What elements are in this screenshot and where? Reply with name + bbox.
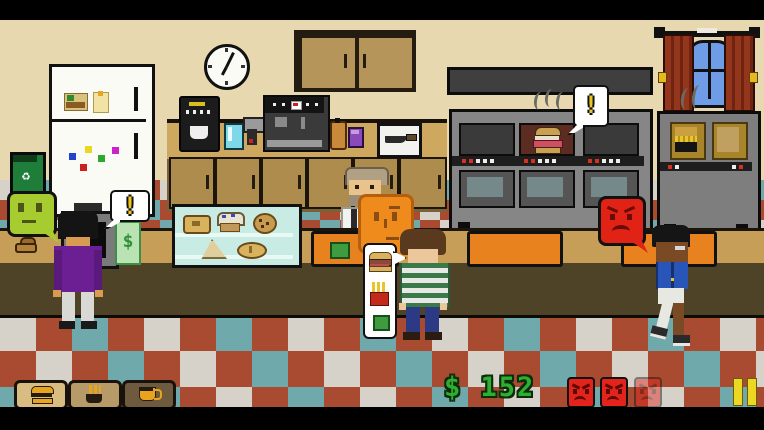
customer-shoe	[81, 321, 97, 329]
photo-detail	[67, 95, 74, 101]
red-light	[588, 159, 592, 163]
customer-shoe	[59, 321, 75, 329]
cookie-chip	[259, 219, 262, 222]
blob-eye	[374, 212, 379, 221]
cookie-pastry[interactable]	[253, 213, 277, 234]
angry-frown	[574, 396, 586, 406]
donut-pastry[interactable]	[183, 215, 211, 234]
oven-door-2[interactable]	[519, 170, 575, 208]
counter-door[interactable]	[261, 157, 307, 209]
red-light	[595, 159, 599, 163]
white-light	[552, 159, 556, 163]
cabinet-door-left[interactable]	[300, 36, 357, 90]
exclamation-icon: !	[112, 193, 148, 219]
jacket-zipper	[671, 262, 674, 289]
door-handle	[390, 175, 393, 189]
icon-cup-handle	[154, 389, 162, 400]
door-handle	[298, 175, 301, 189]
pause-icon	[747, 378, 757, 406]
fryer-basket	[675, 142, 697, 152]
customer-leg	[673, 303, 684, 335]
cabinet-handle	[344, 54, 347, 68]
angry-eye	[652, 389, 656, 394]
curtain-tieback	[749, 72, 758, 83]
blob-eye	[18, 203, 24, 212]
muffin-base	[220, 223, 240, 232]
clock-tick	[225, 48, 228, 52]
order-tray-2	[467, 231, 563, 267]
money-counter: $ 152	[444, 372, 535, 403]
blue-glass	[224, 123, 244, 150]
knife-blade	[385, 136, 407, 143]
customer-leg	[62, 292, 75, 322]
wall-clock	[204, 44, 250, 90]
white-light	[483, 159, 487, 163]
badge-red	[293, 103, 298, 106]
chef-eye	[355, 185, 359, 189]
glass-highlight	[228, 127, 232, 141]
espresso-dot	[282, 103, 285, 106]
red-light	[469, 159, 473, 163]
angry-frown	[607, 396, 619, 406]
espresso-dot	[315, 103, 318, 106]
customer-face	[656, 242, 688, 262]
order-bubble	[363, 243, 397, 339]
coffee-cup-white	[190, 126, 208, 139]
fryer	[657, 111, 761, 231]
blob-eye	[610, 214, 615, 220]
cookie-chip	[266, 222, 269, 225]
white-light	[476, 159, 480, 163]
customer-arm	[54, 250, 62, 290]
espresso-group-head	[301, 117, 305, 129]
syrup-bottle	[330, 121, 347, 150]
customer-walking	[647, 225, 697, 347]
burger-bun-bottom	[535, 147, 561, 154]
customer-hand	[399, 303, 406, 310]
oven-slot-1[interactable]	[459, 123, 515, 156]
coffee-icon	[139, 387, 161, 402]
white-light	[609, 159, 613, 163]
clock-tick	[241, 65, 245, 68]
icon-coffee-surface	[140, 388, 153, 391]
oven-door-glass	[527, 177, 563, 197]
oven-indicator-strip	[452, 156, 644, 166]
order-item-fries	[370, 282, 389, 306]
recycle-icon: ♻	[16, 167, 36, 185]
anger-strike-3-empty	[634, 377, 662, 408]
bread-base	[15, 243, 37, 253]
letterbox-top	[0, 0, 764, 20]
letterbox-bottom	[0, 407, 764, 430]
order-button-fries[interactable]	[68, 380, 122, 410]
blob-body	[7, 191, 57, 237]
pastry-display-case[interactable]	[172, 204, 302, 268]
customer-hair	[58, 211, 98, 239]
angry-eye	[606, 389, 610, 394]
fridge-note-magnet	[93, 92, 109, 113]
espresso-badge	[291, 101, 302, 110]
fridge-divider	[52, 119, 146, 122]
oven-lights	[462, 159, 497, 163]
knife-handle	[406, 134, 417, 141]
clock-hour-hand	[221, 66, 228, 75]
money-bill[interactable]: $	[115, 221, 141, 265]
bottle-cap	[335, 118, 340, 123]
angry-frown	[641, 396, 653, 406]
muffin-berry	[222, 215, 226, 218]
case-shelf	[175, 255, 293, 259]
customer-torso	[400, 263, 450, 307]
blob-eye	[392, 212, 397, 221]
white-light	[545, 159, 549, 163]
red-light	[462, 159, 466, 163]
grinder-light	[249, 139, 253, 143]
clock-tick	[208, 65, 212, 68]
blob-mouth	[22, 220, 36, 223]
blob-brow	[607, 206, 618, 213]
espresso-drip-tray	[267, 140, 322, 147]
door-handle	[252, 175, 255, 189]
fridge-magnet-dot	[98, 155, 105, 162]
fridge-handle	[134, 133, 138, 159]
white-light	[732, 165, 736, 169]
blob-eye	[36, 203, 42, 212]
order-chip[interactable]	[330, 242, 350, 259]
customer-hand	[53, 290, 61, 297]
fridge-magnet-dot	[69, 153, 76, 160]
fridge-photo-magnet	[64, 93, 88, 111]
napkin-holder	[348, 127, 364, 148]
customer-face	[408, 249, 438, 263]
coffee-maker-buttons	[186, 110, 210, 114]
pause-icon	[733, 378, 743, 406]
espresso-dot	[306, 103, 309, 106]
wall-cabinet[interactable]	[294, 30, 416, 92]
oven-alert-bubble: !	[573, 85, 609, 127]
customer-leg	[425, 307, 439, 333]
white-light	[675, 165, 679, 169]
donut-hole	[192, 221, 200, 226]
angry-eye	[585, 389, 589, 394]
clock-tick	[225, 81, 228, 85]
bill-dollar-symbol: $	[123, 231, 134, 252]
fridge-magnet-dot	[112, 147, 119, 154]
fryer-slot-right[interactable]	[712, 122, 748, 160]
croissant-pastry[interactable]	[237, 242, 267, 259]
fryer-inner-empty	[717, 127, 739, 152]
customer-torso	[54, 246, 102, 292]
order-button-coffee[interactable]	[122, 380, 176, 410]
cabinet-handle	[363, 54, 366, 68]
exclamation-icon: !	[575, 92, 607, 118]
muffin-berry	[231, 214, 235, 217]
customer-arm	[94, 250, 102, 290]
order-item-burger	[369, 252, 390, 270]
game-stage: ♻	[0, 0, 764, 430]
chef-eye	[370, 185, 374, 189]
curtain-tieback	[658, 72, 667, 83]
burger-icon	[31, 386, 52, 403]
blob-brow	[624, 206, 635, 213]
red-light	[524, 159, 528, 163]
fridge-magnet-dot	[85, 146, 92, 153]
white-light	[616, 159, 620, 163]
customer-glasses	[675, 246, 685, 250]
pause-button[interactable]	[733, 378, 759, 405]
fryer-slot-left[interactable]	[670, 122, 706, 160]
fridge-magnet-dot	[80, 164, 87, 171]
customer-leg	[81, 292, 94, 322]
napkin	[351, 130, 359, 134]
customer-torso	[656, 262, 688, 289]
knife-sign	[377, 123, 422, 158]
customer-shoe	[425, 332, 442, 340]
counter-door[interactable]	[215, 157, 261, 209]
order-button-burger[interactable]	[14, 380, 68, 410]
door-handle	[438, 175, 441, 189]
customer-leg	[406, 307, 420, 333]
icon-bun-bottom	[32, 398, 53, 404]
croissant-line	[249, 246, 252, 253]
recycle-bin-lid	[13, 155, 37, 162]
customer-hand	[95, 290, 103, 297]
blob-brow	[389, 206, 400, 209]
window-valance	[697, 28, 717, 33]
blob-nose	[384, 219, 387, 228]
red-light	[668, 165, 672, 169]
cookie-chip	[261, 225, 264, 228]
oven-door-glass	[467, 177, 503, 197]
muffin-pastry[interactable]	[217, 212, 241, 230]
red-light	[739, 165, 743, 169]
door-handle	[206, 175, 209, 189]
oven-slot-2[interactable]	[519, 123, 575, 156]
fries-icon	[86, 385, 104, 404]
blob-mouth-frown	[612, 225, 630, 238]
white-light	[538, 159, 542, 163]
anger-strike-2	[600, 377, 628, 408]
customer-shoe	[403, 332, 420, 340]
customer-shoe	[673, 335, 690, 346]
angry-eye	[640, 389, 644, 394]
fries-box	[370, 292, 389, 306]
fridge-handle	[134, 87, 138, 111]
photo-detail	[66, 102, 85, 108]
icon-fries-cup	[86, 394, 102, 403]
register-alert-bubble: !	[110, 190, 150, 222]
angry-eye	[573, 389, 577, 394]
order-item-green	[373, 315, 390, 331]
coffee-grinder[interactable]	[243, 117, 261, 145]
customer-purple	[52, 211, 104, 331]
blob-eye	[627, 214, 632, 220]
blob-body	[598, 196, 646, 246]
oven-door-glass	[591, 177, 627, 197]
white-light	[490, 159, 494, 163]
espresso-group-head	[275, 117, 287, 127]
oven-slot-3[interactable]	[583, 123, 639, 156]
note-pin	[98, 91, 103, 96]
icon-patty	[31, 393, 52, 397]
oven-lights	[588, 159, 623, 163]
burger-bun-top	[535, 127, 561, 136]
espresso-machine[interactable]	[263, 95, 330, 152]
customer-striped	[397, 229, 449, 341]
oven-lights	[524, 159, 559, 163]
espresso-dot	[273, 103, 276, 106]
coffee-maker[interactable]	[179, 96, 220, 152]
red-light	[531, 159, 535, 163]
burger-bun-bottom	[369, 266, 392, 272]
jacket-button	[671, 278, 674, 281]
angry-eye	[618, 389, 622, 394]
customer-hand	[440, 303, 447, 310]
anger-strike-1	[567, 377, 595, 408]
oven-door-1[interactable]	[459, 170, 515, 208]
clock-minute-hand	[225, 52, 235, 68]
white-light	[602, 159, 606, 163]
chef-strap	[351, 209, 357, 229]
window	[652, 26, 762, 110]
coffee-maker-light	[189, 102, 205, 106]
counter-door[interactable]	[169, 157, 215, 209]
fryer-indicator-strip	[660, 162, 752, 171]
